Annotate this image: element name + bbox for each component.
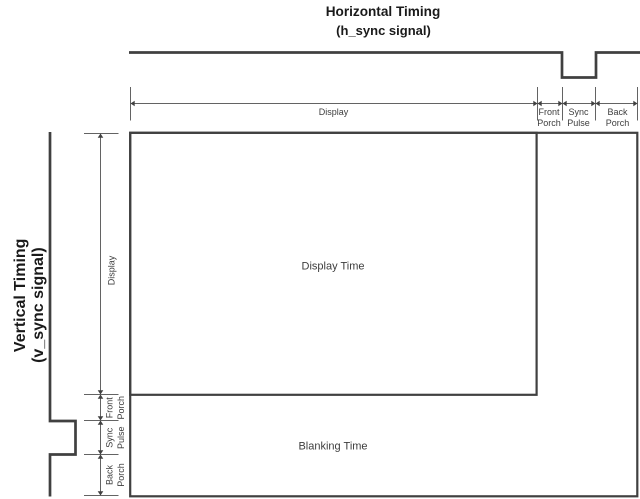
svg-text:Horizontal Timing: Horizontal Timing xyxy=(326,4,441,19)
svg-text:Vertical Timing: Vertical Timing xyxy=(12,239,29,353)
svg-text:Back: Back xyxy=(607,107,628,117)
svg-text:Back: Back xyxy=(105,464,115,485)
svg-text:Porch: Porch xyxy=(606,118,630,128)
svg-text:Sync: Sync xyxy=(568,107,589,117)
svg-text:Display: Display xyxy=(107,255,117,285)
svg-text:(v_sync signal): (v_sync signal) xyxy=(30,247,47,363)
svg-text:Pulse: Pulse xyxy=(567,118,590,128)
svg-text:Front: Front xyxy=(105,397,115,419)
svg-text:Porch: Porch xyxy=(116,396,126,420)
svg-text:Blanking Time: Blanking Time xyxy=(298,441,367,453)
svg-text:Porch: Porch xyxy=(116,463,126,487)
svg-text:Porch: Porch xyxy=(537,118,561,128)
svg-text:Pulse: Pulse xyxy=(116,426,126,449)
svg-text:Sync: Sync xyxy=(105,427,115,448)
svg-text:Display: Display xyxy=(319,107,349,117)
svg-text:Front: Front xyxy=(538,107,560,117)
svg-text:Display Time: Display Time xyxy=(302,260,365,272)
svg-text:(h_sync signal): (h_sync signal) xyxy=(336,23,431,38)
